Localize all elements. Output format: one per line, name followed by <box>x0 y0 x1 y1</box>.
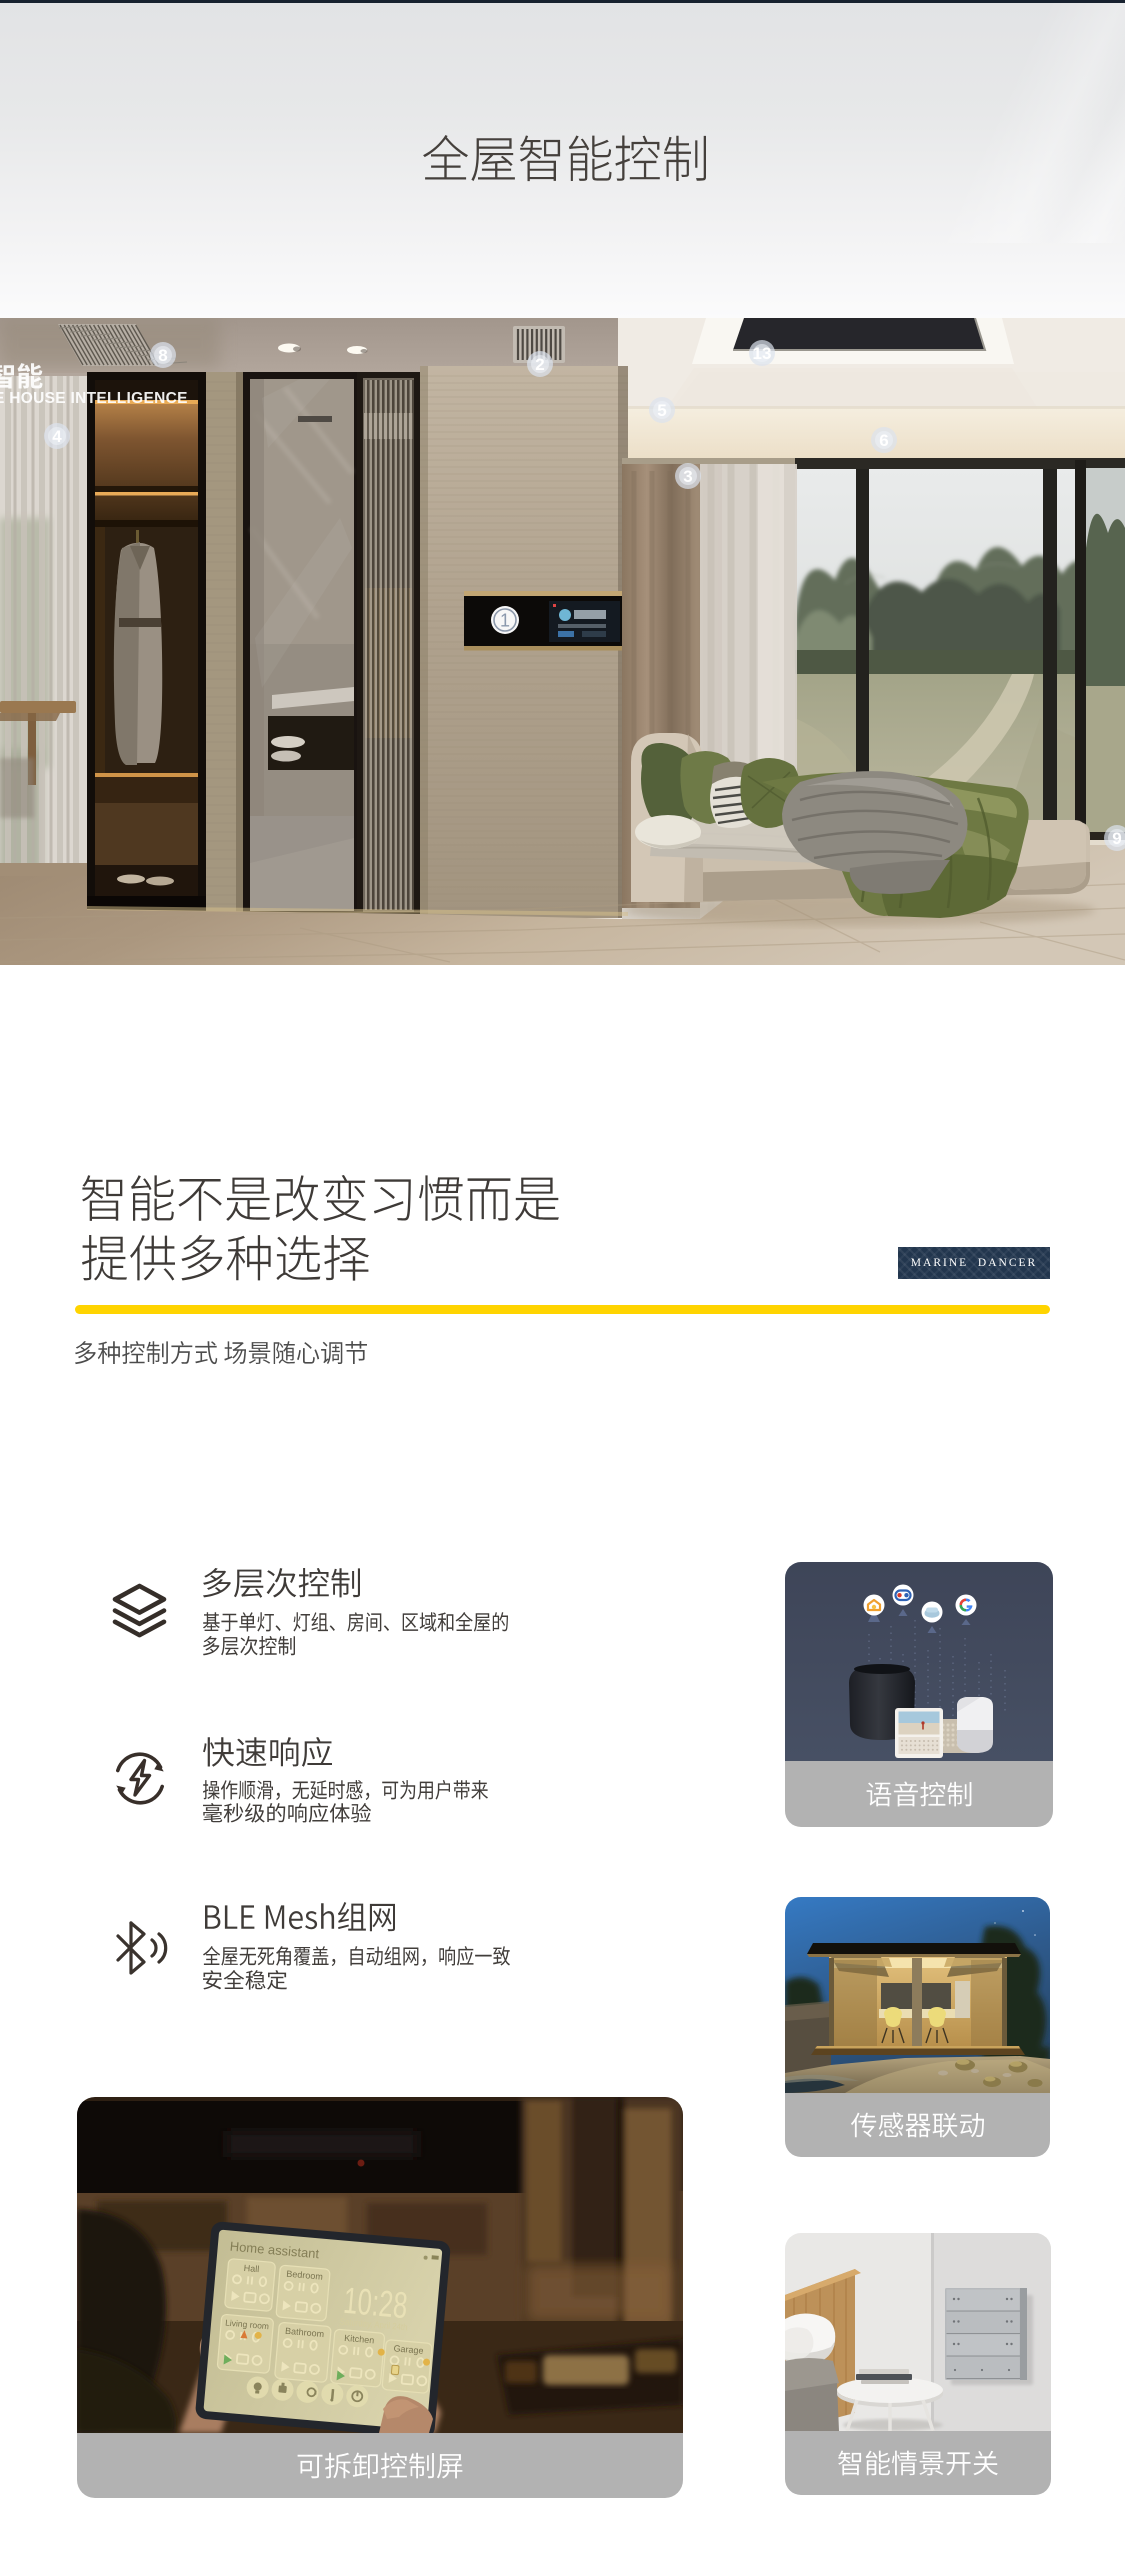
svg-text:13: 13 <box>753 344 772 363</box>
svg-text:5: 5 <box>657 401 666 420</box>
svg-text:E HOUSE INTELLIGENCE: E HOUSE INTELLIGENCE <box>0 390 188 407</box>
svg-text:6: 6 <box>879 431 888 450</box>
svg-text:2: 2 <box>535 355 544 374</box>
svg-text:4: 4 <box>52 427 62 446</box>
svg-text:8: 8 <box>158 346 167 365</box>
svg-text:Hall: Hall <box>243 2263 259 2274</box>
svg-text:1: 1 <box>500 611 510 631</box>
svg-text:9: 9 <box>1112 829 1121 848</box>
svg-text:3: 3 <box>683 467 692 486</box>
